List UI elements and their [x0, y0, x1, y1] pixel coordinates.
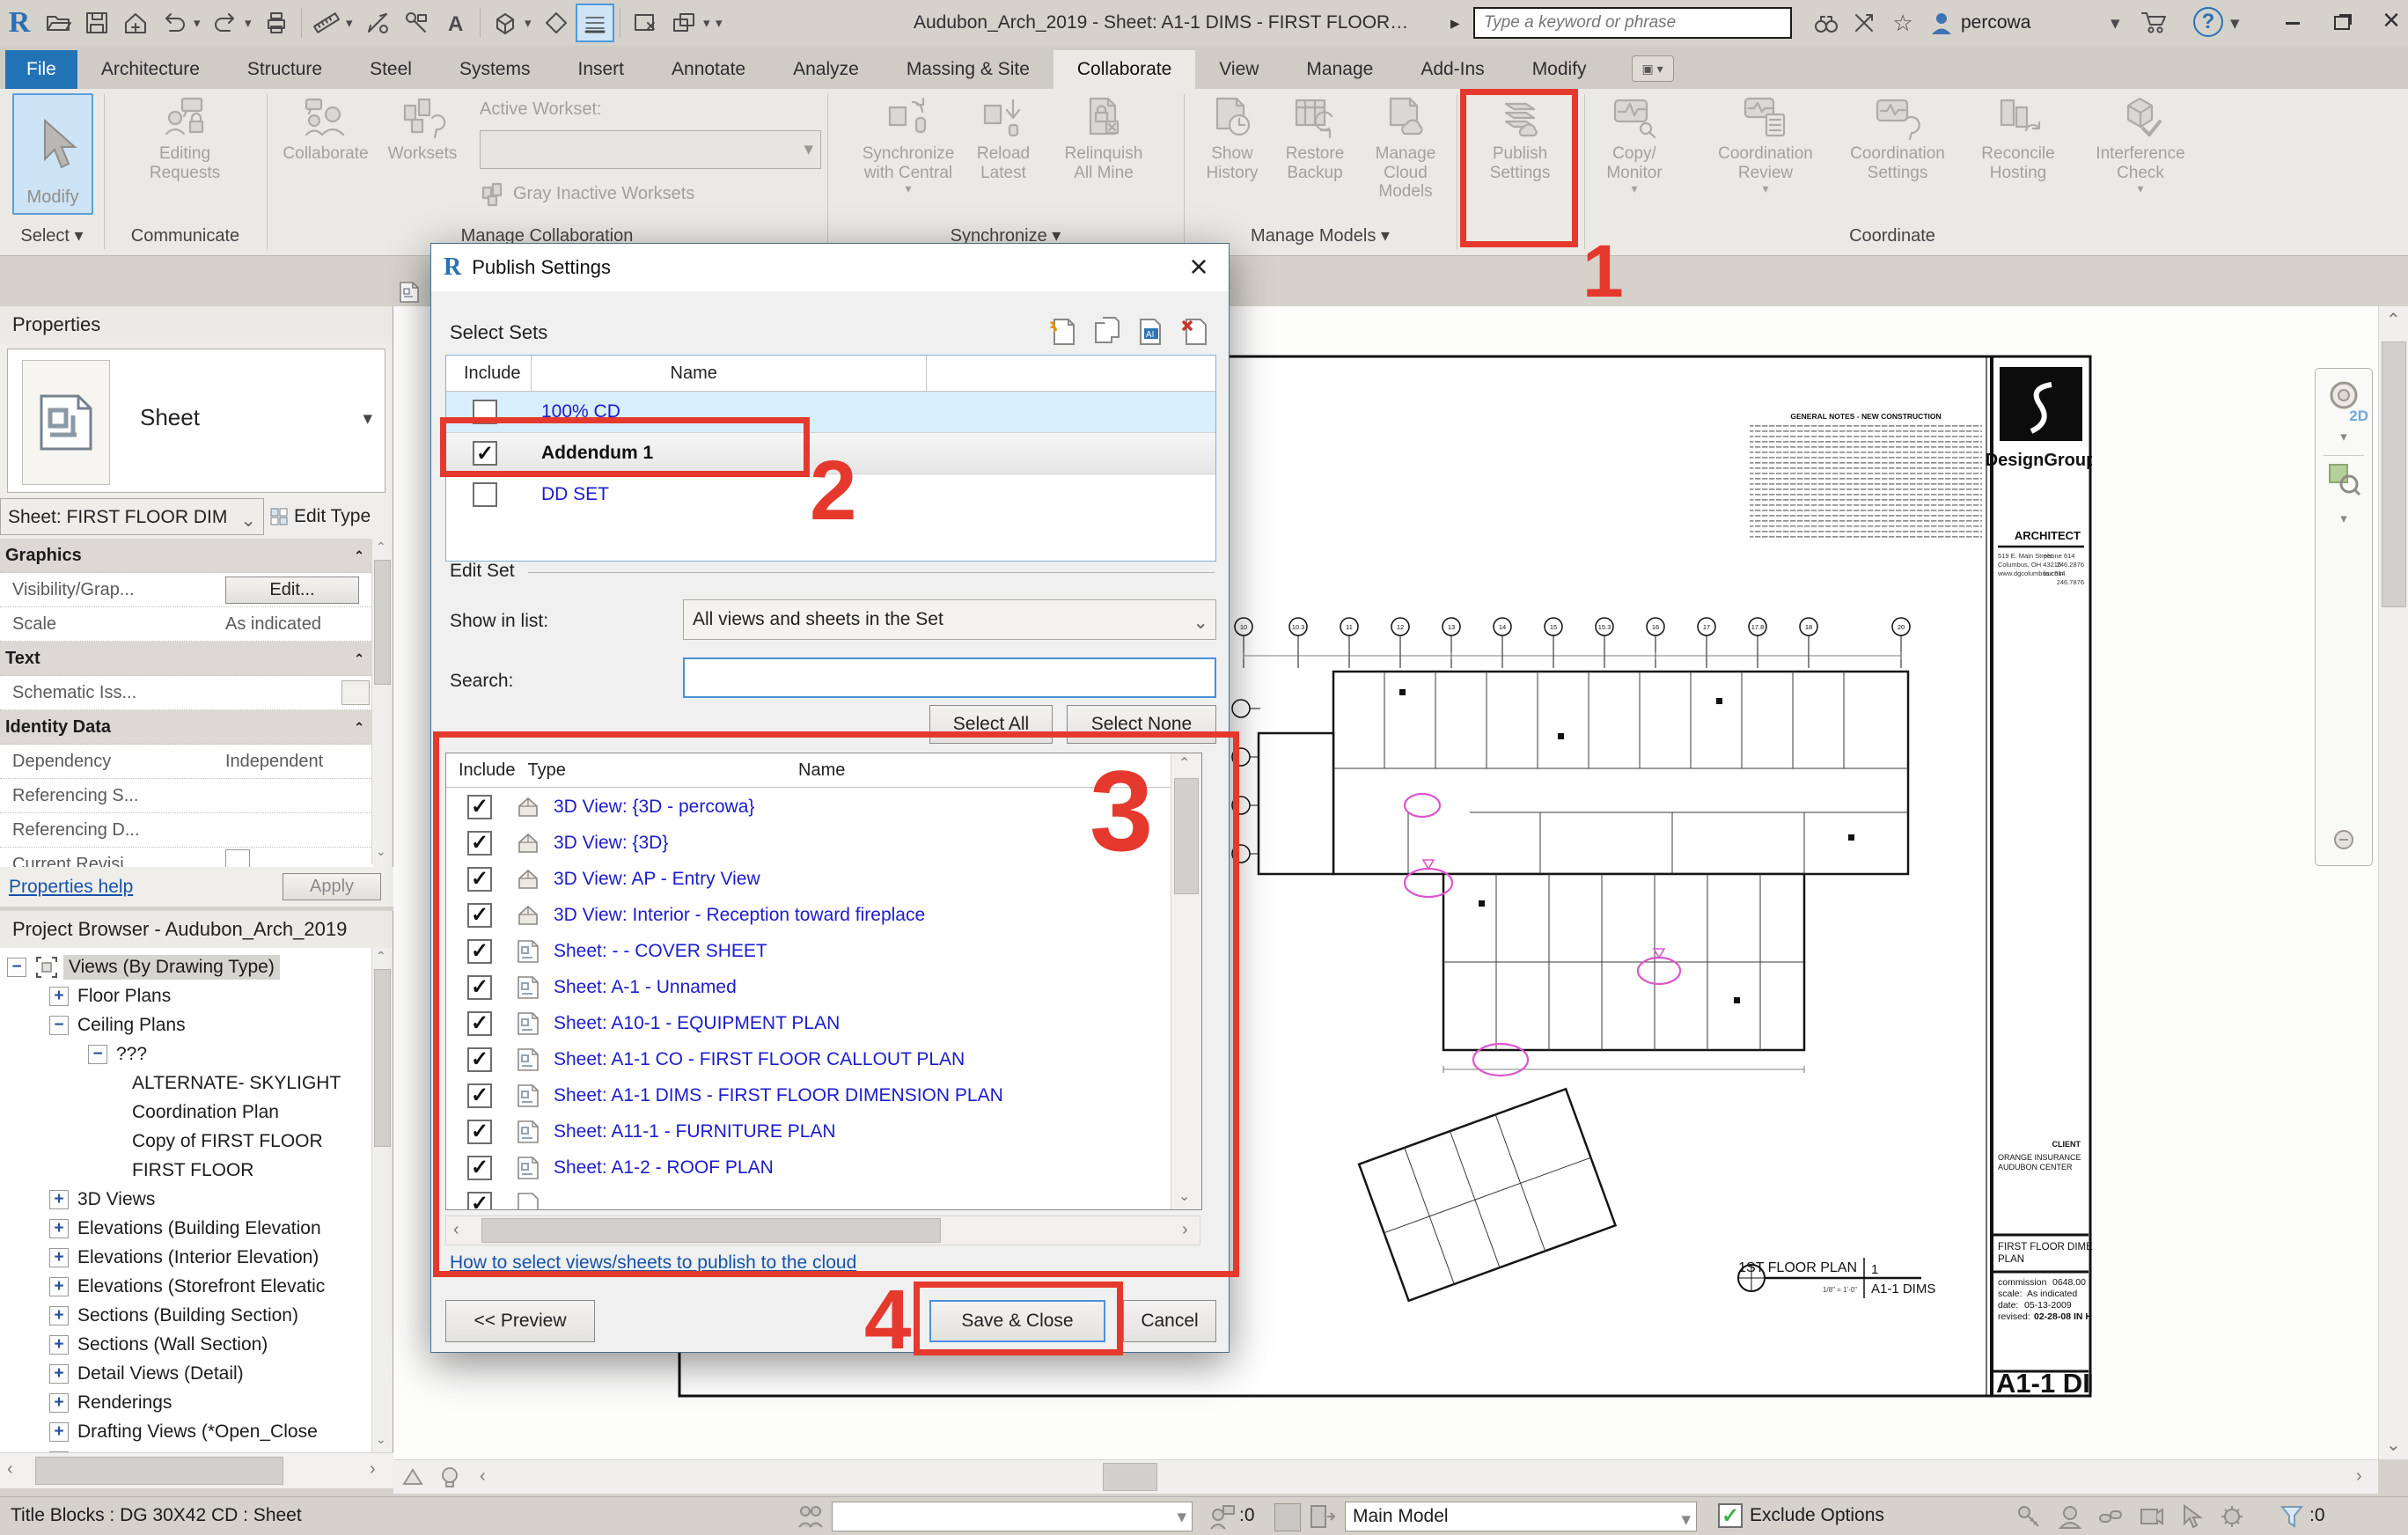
rename-set-icon[interactable]: AI [1135, 316, 1167, 348]
measure-icon[interactable] [307, 4, 346, 42]
svg-text:A1-1 DIMS: A1-1 DIMS [1871, 1282, 1935, 1296]
svg-text:16: 16 [1652, 623, 1659, 631]
step2-number: 2 [810, 449, 856, 533]
active-workset-combo[interactable] [480, 130, 821, 169]
preview-button[interactable]: << Preview [445, 1300, 595, 1342]
help-caret-icon[interactable] [2230, 12, 2240, 34]
text-icon[interactable]: A [436, 4, 474, 42]
svg-text:ORANGE INSURANCE: ORANGE INSURANCE [1998, 1153, 2081, 1162]
caret-down-icon [1381, 226, 1390, 246]
coordination-settings-label: Coordination Settings [1840, 144, 1955, 182]
sheet-type-icon [22, 360, 110, 485]
editing-requests-icon[interactable] [1208, 1502, 1236, 1531]
general-notes: GENERAL NOTES - NEW CONSTRUCTION [1750, 412, 1982, 538]
caret-down-icon [75, 226, 84, 246]
svg-text:commission: commission [1998, 1277, 2047, 1288]
tab-architecture[interactable]: Architecture [77, 50, 224, 89]
properties-footer: Properties help Apply [0, 867, 393, 907]
svg-text:revised:: revised: [1998, 1311, 2030, 1322]
cancel-button[interactable]: Cancel [1123, 1300, 1216, 1342]
key-icon[interactable] [2015, 1502, 2044, 1531]
browser-scrollbar[interactable]: ⌃ ⌄ [371, 948, 392, 1452]
collapse-icon[interactable] [88, 1045, 107, 1064]
background-processes-icon[interactable] [2137, 1502, 2165, 1531]
edit-set-rule [528, 572, 1215, 573]
tab-annotate[interactable]: Annotate [648, 50, 769, 89]
help-icon[interactable]: ? [2193, 7, 2223, 37]
switch-windows-icon[interactable] [664, 4, 703, 42]
worker-icon[interactable] [2056, 1502, 2084, 1531]
referencing-sheet-row[interactable]: Referencing S... [0, 779, 373, 813]
properties-grid: Graphics⌃ Visibility/Grap...Edit... Scal… [0, 539, 373, 905]
visibility-row[interactable]: Visibility/Grap...Edit... [0, 573, 373, 607]
tab-steel[interactable]: Steel [346, 50, 436, 89]
show-in-list-label: Show in list: [450, 611, 548, 632]
text-section[interactable]: Text⌃ [0, 642, 373, 676]
gray-inactive-label: Gray Inactive Worksets [513, 184, 694, 204]
tree-item-elevations-interior[interactable]: Elevations (Interior Elevation) [49, 1243, 319, 1272]
svg-text:11: 11 [1346, 623, 1353, 631]
thin-lines-icon[interactable] [576, 4, 614, 42]
svg-text:12: 12 [1397, 623, 1404, 631]
new-set-icon[interactable] [1047, 316, 1079, 348]
search-input[interactable] [1473, 7, 1792, 39]
caret-down-icon [2137, 182, 2143, 196]
svg-text:A: A [448, 12, 463, 36]
tree-item-detail-views[interactable]: Detail Views (Detail) [49, 1359, 244, 1388]
redo-icon[interactable] [206, 4, 245, 42]
user-menu-caret-icon[interactable] [2111, 12, 2120, 34]
navigation-bar: 2D [2315, 368, 2373, 866]
save-icon[interactable] [77, 4, 116, 42]
canvas-vertical-scrollbar[interactable]: ⌃ ⌄ [2378, 306, 2408, 1459]
measure-caret-icon[interactable] [346, 15, 358, 31]
properties-scrollbar[interactable]: ⌃ ⌄ [371, 539, 392, 864]
restore-backup-button[interactable]: Restore Backup [1266, 93, 1363, 217]
tree-item-elevations-storefront[interactable]: Elevations (Storefront Elevatic [49, 1272, 325, 1301]
undo-icon[interactable] [155, 4, 194, 42]
expand-icon[interactable] [49, 1219, 69, 1238]
step1-number: 1 [1582, 234, 1624, 308]
instance-selector-combo[interactable]: Sheet: FIRST FLOOR DIM [0, 498, 264, 535]
copy-monitor-button[interactable]: Copy/ Monitor [1586, 93, 1683, 217]
visibility-edit-button[interactable]: Edit... [225, 577, 359, 604]
favorites-icon[interactable] [1883, 4, 1922, 42]
svg-text:0648.00: 0648.00 [2052, 1277, 2086, 1288]
tree-item-first-floor[interactable]: FIRST FLOOR [132, 1156, 253, 1185]
sheet-number: A1-1 DIMS [1996, 1368, 2092, 1398]
panel-separator [1457, 94, 1457, 249]
interference-check-button[interactable]: Interference Check [2088, 93, 2193, 217]
close-hidden-windows-icon[interactable] [626, 4, 664, 42]
worksets-label: Worksets [388, 144, 458, 164]
svg-text:date:: date: [1998, 1300, 2018, 1311]
link-icon[interactable] [2096, 1502, 2125, 1531]
panel-communicate[interactable]: Communicate [104, 221, 267, 251]
tab-modify[interactable]: Modify [1509, 50, 1611, 89]
type-name: Sheet [140, 404, 200, 431]
coordination-settings-button[interactable]: Coordination Settings [1840, 93, 1955, 217]
restore-button[interactable] [2320, 4, 2364, 42]
app-store-icon[interactable] [1845, 4, 1883, 42]
filter-count: :0 [2309, 1505, 2325, 1526]
tree-item-ceiling-plans[interactable]: Ceiling Plans [49, 1010, 186, 1039]
zoom-icon[interactable] [2324, 459, 2363, 503]
gray-inactive-worksets-button[interactable]: Gray Inactive Worksets [480, 180, 694, 207]
ribbon: Modify Select Editing Requests Communica… [0, 89, 2408, 256]
tab-massing-site[interactable]: Massing & Site [883, 50, 1053, 89]
tree-item-drafting-detail[interactable]: Drafting Views (Detail) [49, 1446, 261, 1452]
svg-text:AI: AI [1146, 330, 1154, 340]
expand-icon[interactable] [49, 1393, 69, 1413]
signed-in-user[interactable]: percowa [1961, 12, 2030, 33]
sync-central-label: Synchronize with Central [855, 144, 961, 182]
worksharing-display-icon[interactable] [400, 1465, 425, 1489]
status-bar: Title Blocks : DG 30X42 CD : Sheet :0 Ma… [0, 1496, 2408, 1535]
select-toggle-icon[interactable] [2177, 1502, 2206, 1531]
dialog-title: Publish Settings [472, 256, 611, 279]
svg-text:10: 10 [1240, 623, 1247, 631]
wheel-2d-label: 2D [2349, 408, 2368, 425]
step1-highlight-box [1460, 89, 1578, 247]
firm-name: DesignGroup [1986, 451, 2092, 470]
qat-customize-icon[interactable] [716, 15, 728, 31]
svg-text:phone 614: phone 614 [2044, 552, 2074, 560]
qat-separator [301, 8, 302, 38]
sets-toolbar: AI [1047, 316, 1211, 348]
synchronize-with-central-button[interactable]: Synchronize with Central [855, 93, 961, 217]
svg-text:17: 17 [1703, 623, 1710, 631]
collaborate-button[interactable]: Collaborate [277, 93, 374, 217]
svg-text:scale:: scale: [1998, 1289, 2022, 1299]
sets-table-header: Include Name [446, 356, 1215, 392]
editing-requests-label: Editing Requests [136, 144, 233, 182]
tab-addins[interactable]: Add-Ins [1397, 50, 1508, 89]
tab-manage[interactable]: Manage [1282, 50, 1397, 89]
tag-icon[interactable] [397, 4, 436, 42]
client-label: CLIENT [2052, 1140, 2081, 1149]
reload-latest-button[interactable]: Reload Latest [955, 93, 1052, 217]
status-text: Title Blocks : DG 30X42 CD : Sheet [11, 1505, 302, 1526]
qat-separator [480, 8, 481, 38]
expand-icon[interactable] [49, 1277, 69, 1296]
tab-collaborate[interactable]: Collaborate [1053, 50, 1195, 89]
svg-text:14: 14 [1499, 623, 1506, 631]
sheet-title: FIRST FLOOR DIMENSION [1998, 1242, 2092, 1252]
open-icon[interactable] [39, 4, 77, 42]
collapse-icon[interactable] [49, 1016, 69, 1035]
exclude-options-toggle[interactable]: Exclude Options [1718, 1503, 1884, 1528]
close-button[interactable] [2369, 4, 2408, 42]
svg-text:246.2876: 246.2876 [2057, 561, 2084, 569]
gear-icon[interactable] [2218, 1502, 2246, 1531]
svg-text:GENERAL NOTES - NEW CONSTRUCTI: GENERAL NOTES - NEW CONSTRUCTION [1790, 412, 1941, 421]
svg-text:AUDUBON CENTER: AUDUBON CENTER [1998, 1163, 2073, 1171]
expand-icon[interactable] [49, 1422, 69, 1442]
aligned-dimension-icon[interactable] [358, 4, 397, 42]
expand-icon[interactable] [49, 1306, 69, 1326]
editable-only-icon[interactable] [1274, 1503, 1301, 1531]
revit-window: R A Audubon_Arch_2019 - Sheet: A1-1 DIMS… [0, 0, 2408, 1535]
modify-label: Modify [27, 187, 79, 208]
svg-text:02-28-08 IN HOUSE: 02-28-08 IN HOUSE [2034, 1311, 2092, 1322]
svg-text:05-13-2009: 05-13-2009 [2024, 1300, 2072, 1311]
coordination-review-button[interactable]: Coordination Review [1713, 93, 1818, 217]
delete-set-icon[interactable] [1179, 316, 1211, 348]
tree-item-elevations-building[interactable]: Elevations (Building Elevation [49, 1214, 321, 1243]
type-selector[interactable]: Sheet [7, 349, 385, 493]
tab-view[interactable]: View [1195, 50, 1282, 89]
tree-item-alternate-skylight[interactable]: ALTERNATE- SKYLIGHT [132, 1069, 341, 1098]
set-checkbox[interactable] [473, 482, 497, 507]
panel-coordinate[interactable]: Coordinate [1584, 221, 2200, 251]
views-icon [35, 956, 58, 979]
tab-structure[interactable]: Structure [224, 50, 346, 89]
step3-number: 3 [1090, 753, 1153, 868]
restore-backup-label: Restore Backup [1266, 144, 1363, 182]
copy-monitor-label: Copy/ Monitor [1586, 144, 1683, 182]
ribbon-tab-bar: File Architecture Structure Steel System… [0, 46, 2408, 89]
print-icon[interactable] [257, 4, 296, 42]
search-label: Search: [450, 671, 513, 692]
infocenter: percowa [1806, 4, 2030, 42]
cart-icon[interactable] [2139, 7, 2169, 42]
undo-caret-icon[interactable] [194, 15, 206, 31]
user-icon[interactable] [1922, 4, 1961, 42]
exclude-options-checkbox[interactable] [1718, 1503, 1743, 1528]
default-3d-view-icon[interactable] [486, 4, 525, 42]
caret-down-icon [1631, 182, 1637, 196]
steering-wheel-icon[interactable]: 2D [2324, 378, 2363, 422]
reconcile-hosting-button[interactable]: Reconcile Hosting [1970, 93, 2067, 217]
active-workset-status-combo[interactable] [832, 1502, 1193, 1531]
worksets-button[interactable]: Worksets [374, 93, 471, 217]
navbar-collapse-icon[interactable] [2332, 828, 2355, 856]
tree-item-sections-wall[interactable]: Sections (Wall Section) [49, 1330, 268, 1359]
manage-cloud-label: Manage Cloud Models [1355, 144, 1456, 202]
filter-icon[interactable] [2278, 1502, 2306, 1531]
select-sets-label: Select Sets [450, 321, 547, 344]
svg-text:13: 13 [1448, 623, 1455, 631]
worksets-status-icon[interactable] [797, 1502, 825, 1531]
dialog-search-input[interactable] [683, 657, 1216, 698]
relinquish-status-icon[interactable] [1308, 1502, 1336, 1531]
tab-analyze[interactable]: Analyze [769, 50, 883, 89]
project-browser: Project Browser - Audubon_Arch_2019 View… [0, 911, 393, 1487]
tree-item-renderings[interactable]: Renderings [49, 1388, 172, 1417]
sync-with-central-icon[interactable] [116, 4, 155, 42]
relinquish-all-mine-button[interactable]: Relinquish All Mine [1055, 93, 1152, 217]
reveal-hidden-icon[interactable] [437, 1465, 462, 1489]
architect-label: ARCHITECT [2015, 529, 2081, 542]
editing-requests-button[interactable]: Editing Requests [136, 93, 233, 217]
design-option-combo[interactable]: Main Model [1345, 1502, 1697, 1531]
graphics-section[interactable]: Graphics⌃ [0, 539, 373, 573]
coordination-review-label: Coordination Review [1713, 144, 1818, 182]
caret-down-icon [905, 182, 911, 196]
duplicate-set-icon[interactable] [1091, 316, 1123, 348]
edit-type-button[interactable]: Edit Type [269, 498, 387, 535]
tree-item-3d-views[interactable]: 3D Views [49, 1185, 155, 1214]
step4-number: 4 [864, 1278, 911, 1362]
svg-text:20: 20 [1898, 623, 1905, 631]
svg-text:10.3: 10.3 [1292, 623, 1305, 631]
step4-highlight-box [914, 1282, 1123, 1355]
view-tab-sheet-icon[interactable] [398, 281, 421, 304]
identity-section[interactable]: Identity Data⌃ [0, 710, 373, 745]
exclude-options-label: Exclude Options [1750, 1505, 1884, 1526]
tree-item-coordination-plan[interactable]: Coordination Plan [132, 1098, 279, 1127]
svg-text:15: 15 [1550, 623, 1557, 631]
ribbon-collapse-icon[interactable]: ▣ ▾ [1632, 55, 1674, 82]
svg-text:As indicated: As indicated [2027, 1289, 2077, 1299]
properties-header[interactable]: Properties [0, 306, 393, 343]
dependency-row[interactable]: DependencyIndependent [0, 745, 373, 779]
browser-horizontal-scrollbar[interactable]: ‹ › [0, 1452, 393, 1488]
project-browser-header[interactable]: Project Browser - Audubon_Arch_2019 [0, 911, 393, 948]
relinquish-label: Relinquish All Mine [1055, 144, 1152, 182]
scale-row[interactable]: ScaleAs indicated [0, 607, 373, 642]
reconcile-hosting-label: Reconcile Hosting [1970, 144, 2067, 182]
switch-windows-caret-icon[interactable] [703, 15, 716, 31]
svg-text:15.3: 15.3 [1598, 623, 1611, 631]
expand-icon[interactable] [49, 1248, 69, 1267]
window-title: Audubon_Arch_2019 - Sheet: A1-1 DIMS - F… [914, 0, 1411, 46]
revit-logo-icon[interactable]: R [0, 4, 39, 42]
zoom-caret-icon[interactable] [2340, 510, 2347, 526]
tab-insert[interactable]: Insert [554, 50, 648, 89]
expand-icon[interactable] [49, 987, 69, 1006]
properties-palette: Properties Sheet Sheet: FIRST FLOOR DIM … [0, 306, 393, 907]
modify-button[interactable]: Modify [12, 93, 93, 215]
expand-icon[interactable] [49, 1190, 69, 1209]
type-selector-caret-icon[interactable] [363, 408, 372, 430]
svg-text:17.8: 17.8 [1751, 623, 1765, 631]
redo-caret-icon[interactable] [245, 15, 257, 31]
section-icon[interactable] [537, 4, 576, 42]
edit-set-label: Edit Set [450, 561, 515, 582]
tab-file[interactable]: File [5, 50, 77, 89]
requests-count: :0 [1239, 1505, 1255, 1526]
svg-text:1/8" = 1'-0": 1/8" = 1'-0" [1823, 1286, 1857, 1294]
minimize-button[interactable] [2271, 4, 2315, 42]
revit-dialog-icon: R [444, 253, 461, 282]
dialog-title-bar[interactable]: R Publish Settings [431, 244, 1229, 291]
tree-item-floor-plans[interactable]: Floor Plans [49, 981, 171, 1010]
show-in-list-combo[interactable]: All views and sheets in the Set [683, 599, 1216, 640]
tree-item-unknown[interactable]: ??? [88, 1039, 147, 1069]
apply-button[interactable]: Apply [283, 873, 381, 900]
expand-icon[interactable] [49, 1335, 69, 1355]
panel-select[interactable]: Select [0, 221, 104, 251]
dialog-close-icon[interactable] [1181, 249, 1216, 284]
properties-help-link[interactable]: Properties help [9, 877, 133, 898]
svg-text:Columbus, OH 43215: Columbus, OH 43215 [1998, 561, 2061, 569]
reload-latest-label: Reload Latest [955, 144, 1052, 182]
svg-text:1ST FLOOR PLAN: 1ST FLOOR PLAN [1738, 1260, 1857, 1275]
referencing-detail-row[interactable]: Referencing D... [0, 813, 373, 848]
step2-highlight-box [440, 417, 810, 477]
tree-item-sections-building[interactable]: Sections (Building Section) [49, 1301, 298, 1330]
svg-text:18: 18 [1805, 623, 1812, 631]
active-workset-label: Active Workset: [480, 99, 602, 120]
collaborate-label: Collaborate [283, 144, 368, 164]
wheel-caret-icon[interactable] [2340, 429, 2347, 444]
qat-separator [620, 8, 620, 38]
tree-item-views[interactable]: Views (By Drawing Type) [7, 952, 280, 981]
3d-view-caret-icon[interactable] [525, 15, 537, 31]
browser-tree: Views (By Drawing Type) Floor Plans Ceil… [0, 948, 373, 1452]
canvas-horizontal-scrollbar[interactable]: ‹ › [393, 1459, 2378, 1494]
svg-text:246.7876: 246.7876 [2057, 578, 2084, 586]
search-icon[interactable] [1806, 4, 1845, 42]
svg-text:fax 614: fax 614 [2044, 569, 2066, 577]
caret-down-icon [1762, 182, 1768, 196]
svg-text:1: 1 [1871, 1262, 1878, 1277]
collapse-icon[interactable] [7, 958, 26, 977]
tab-systems[interactable]: Systems [436, 50, 554, 89]
interference-check-label: Interference Check [2088, 144, 2193, 182]
svg-text:PLAN: PLAN [1998, 1254, 2024, 1265]
tree-item-drafting-open-close[interactable]: Drafting Views (*Open_Close [49, 1417, 318, 1446]
tree-item-copy-first-floor[interactable]: Copy of FIRST FLOOR [132, 1127, 323, 1156]
expand-icon[interactable] [49, 1364, 69, 1384]
manage-cloud-models-button[interactable]: Manage Cloud Models [1355, 93, 1456, 217]
title-expand-icon[interactable] [1450, 12, 1460, 34]
schematic-row[interactable]: Schematic Iss... [0, 676, 373, 710]
